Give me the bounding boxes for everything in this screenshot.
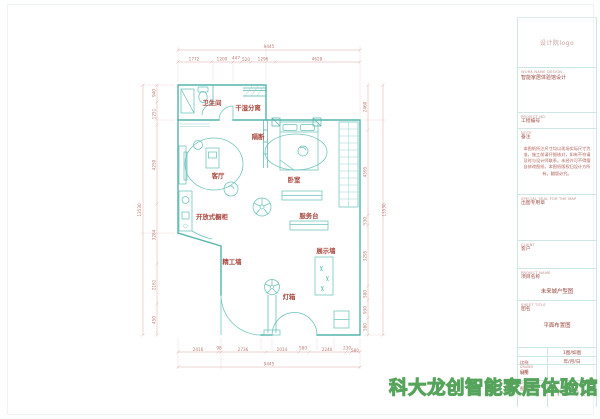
svg-text:4595: 4595: [362, 166, 367, 177]
sheet-title-value: 平面布置图: [518, 321, 596, 329]
svg-text:13530: 13530: [382, 203, 387, 217]
svg-text:1772: 1772: [189, 57, 200, 62]
label-lightbox: 灯箱: [283, 292, 296, 301]
project-name-zh: 项目名称: [521, 275, 593, 281]
work-value: 智能家居体验馆设计: [521, 74, 593, 81]
tb-sheet-title-section: SHEET TITLE 图名 平面布置图: [518, 301, 596, 348]
svg-text:447: 447: [232, 56, 240, 61]
shoe-cabinet: [334, 311, 349, 328]
project-no-zh: 工程编号: [521, 119, 593, 125]
tb-row-scale: 比例 1图/如图: [518, 348, 596, 357]
svg-text:3295: 3295: [362, 250, 367, 261]
label-display: 展示墙: [316, 246, 336, 255]
watermark-text: 科大龙创智能家居体验馆: [389, 374, 598, 400]
label-partition: 隔断: [252, 132, 265, 141]
service-desk: [290, 221, 328, 230]
logo-text: 设计院logo: [540, 38, 574, 47]
watermark: 科大龙创智能家居体验馆: [386, 374, 598, 400]
note-text: 本图纸所注尺寸均以现场实际尺寸为准，施工前请仔细核对，如有不符请及时与设计师联系…: [521, 146, 593, 177]
svg-text:580: 580: [362, 290, 367, 298]
walls: [178, 85, 360, 335]
label-bathroom: 卫生间: [202, 98, 221, 107]
title-block: 设计院logo WORK NAME DESIGN 智能家居体验馆设计 PROJE…: [517, 17, 597, 407]
svg-text:580: 580: [299, 346, 307, 351]
svg-text:580: 580: [362, 323, 367, 331]
drawing-sheet: 9445 1772 1200 447 520 1296 4628 2416 98…: [0, 0, 600, 419]
label-service: 服务台: [299, 211, 319, 220]
svg-text:1200: 1200: [217, 57, 228, 62]
svg-text:1251: 1251: [151, 108, 156, 119]
svg-text:580: 580: [351, 348, 359, 353]
label-drywet: 干湿分离: [235, 103, 261, 112]
tb-work-section: WORK NAME DESIGN 智能家居体验馆设计: [518, 68, 596, 113]
lightbox-fixture: [264, 280, 280, 336]
svg-text:4628: 4628: [312, 57, 323, 62]
svg-text:2460: 2460: [362, 101, 367, 112]
svg-text:520: 520: [242, 57, 250, 62]
label-living: 客厅: [211, 171, 225, 180]
scale-value: 1图/如图: [548, 348, 596, 356]
living-furniture: [179, 124, 243, 196]
svg-text:530: 530: [362, 217, 367, 225]
plant-fan: [253, 198, 271, 216]
dim-right: 2460 4595 530 3295 580 930 580 13530: [362, 84, 386, 337]
tb-note-section: NOTE 备注 本图纸所注尺寸均以现场实际尺寸为准，施工前请仔细核对，如有不符请…: [518, 129, 596, 195]
panda-logo-icon: [386, 375, 387, 399]
date-value: 年/月/日: [548, 357, 596, 364]
bedroom-furniture: [265, 122, 358, 207]
tb-project-name-section: PROJECT NAME 项目名称 未来城户型图: [518, 269, 596, 301]
svg-text:930: 930: [362, 306, 367, 314]
client-header-zh: 客户: [521, 247, 593, 253]
sheet-title-zh: 图名: [521, 307, 593, 313]
svg-text:3284: 3284: [151, 229, 156, 240]
svg-text:940: 940: [151, 89, 156, 97]
note-header-zh: 备注: [521, 135, 593, 141]
dim-bottom: 2416 98 2736 2014 580 2240 230 580 9445: [177, 346, 362, 369]
svg-text:13530: 13530: [137, 203, 142, 217]
tb-row-date: 日期 年/月/日: [518, 357, 596, 365]
svg-text:2161: 2161: [151, 279, 156, 290]
svg-text:9445: 9445: [264, 44, 275, 49]
svg-text:9445: 9445: [264, 362, 275, 367]
label-cabinet: 开放式橱柜: [196, 212, 229, 221]
tb-project-no-section: PROJECT NO. 工程编号: [518, 113, 596, 129]
dim-left: 13530 940 1251 4250 3284 2161 450: [137, 84, 159, 337]
svg-text:98: 98: [216, 346, 222, 351]
svg-text:2014: 2014: [277, 347, 288, 352]
label-wall: 精工墙: [222, 257, 242, 266]
svg-text:2736: 2736: [238, 347, 249, 352]
svg-text:1296: 1296: [258, 57, 269, 62]
dim-top: 9445 1772 1200 447 520 1296 4628: [177, 44, 362, 64]
floor-plan-svg: 9445 1772 1200 447 520 1296 4628 2416 98…: [0, 0, 600, 419]
tb-logo-section: 设计院logo: [518, 18, 596, 68]
svg-text:2240: 2240: [322, 347, 333, 352]
label-bedroom: 卧室: [288, 175, 301, 184]
svg-text:2416: 2416: [193, 347, 204, 352]
tb-seal-section: SPECIAL SEAL FOR THE MAP 出图专用章: [518, 195, 596, 241]
tb-client-section: CLIENT 客户: [518, 241, 596, 269]
svg-text:4250: 4250: [151, 159, 156, 170]
display-wall-case: [315, 257, 333, 295]
seal-header-zh: 出图专用章: [521, 201, 593, 207]
project-name-value: 未来城户型图: [518, 287, 596, 295]
svg-text:450: 450: [151, 316, 156, 324]
